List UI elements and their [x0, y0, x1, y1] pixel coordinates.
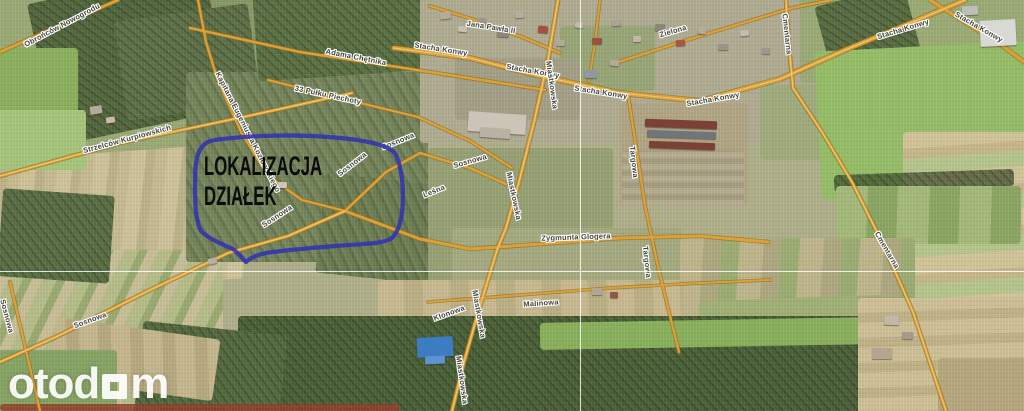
watermark-text-after: m	[130, 359, 168, 408]
otodom-watermark-logo: otodm	[8, 361, 168, 407]
annotation-line-1: LOKALIZACJA	[204, 151, 322, 181]
highlight-svg	[0, 0, 1024, 411]
map-canvas: Obrońców NowogroduStrzelców Kurpiowskich…	[0, 0, 1024, 411]
annotation-line-2: DZIAŁEK	[204, 181, 322, 211]
watermark-text-before: otod	[8, 359, 99, 408]
square-glyph-icon	[102, 374, 127, 399]
plot-location-annotation: LOKALIZACJA DZIAŁEK	[204, 151, 322, 211]
